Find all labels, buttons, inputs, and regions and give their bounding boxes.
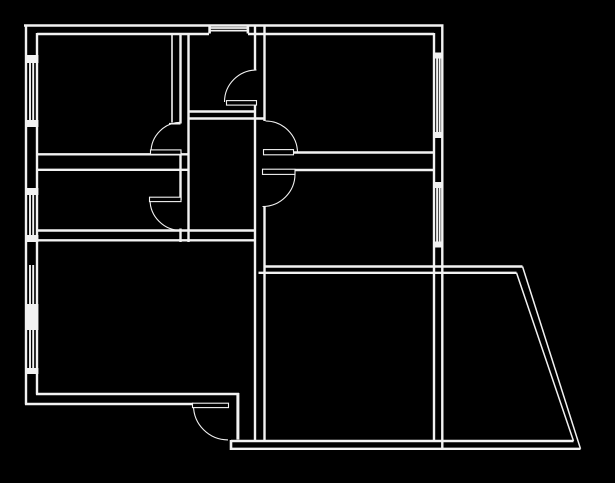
wall-pier: [433, 53, 443, 59]
top-middle-room-door-leaf: [227, 101, 257, 106]
top-right-room-door-leaf: [264, 150, 294, 155]
wall-pier: [25, 304, 38, 330]
wall-pier: [25, 120, 38, 127]
wall-pier: [433, 242, 443, 248]
wall-pier: [25, 55, 38, 63]
mid-left-room-door-leaf: [150, 197, 182, 201]
cad-drawing-viewport[interactable]: [0, 0, 615, 483]
wall-pier: [433, 182, 443, 188]
top-left-room-door-leaf: [151, 150, 182, 154]
wall-pier: [25, 235, 38, 242]
wall-pier: [208, 25, 211, 34]
wall-pier: [247, 25, 250, 34]
wall-pier: [25, 368, 38, 374]
entry-door-leaf: [193, 403, 229, 407]
wall-pier: [433, 132, 443, 138]
wall-pier: [25, 188, 38, 195]
floor-plan-canvas[interactable]: [0, 0, 615, 483]
mid-right-room-door-leaf: [263, 169, 296, 174]
